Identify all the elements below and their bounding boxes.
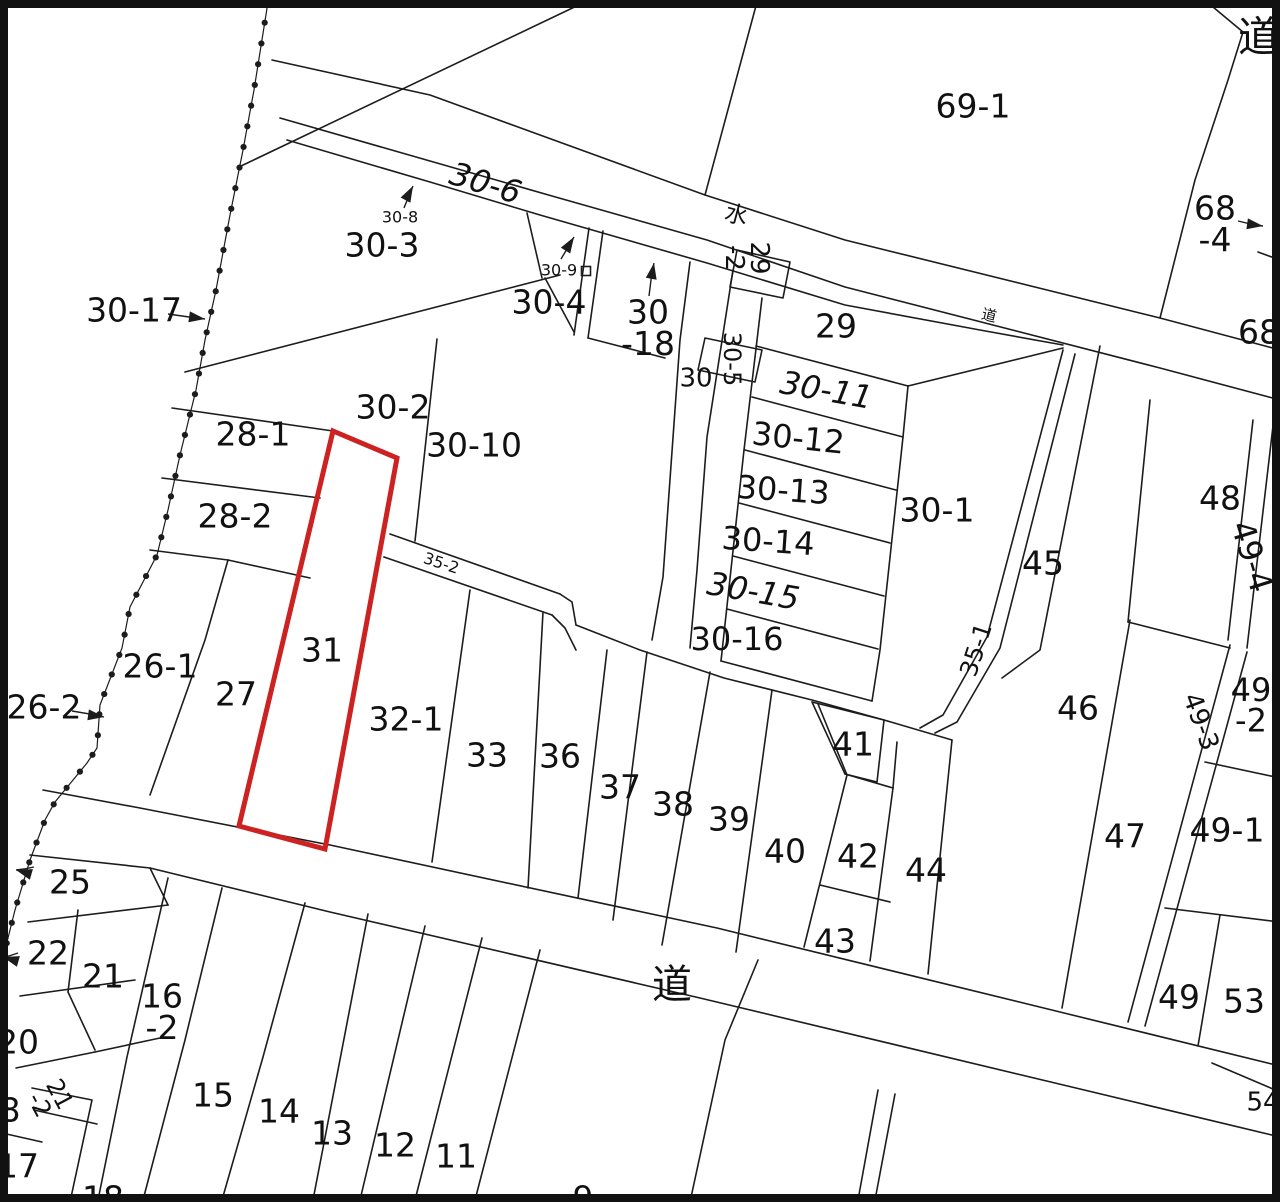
parcel-label-30-13: 30-13 [735,468,830,512]
parcel-label-47: 47 [1104,817,1146,856]
boundary-dot [196,370,202,376]
parcel-49-2: 49-2 [1231,671,1272,739]
boundary-dot [168,493,174,499]
boundary-dot [133,592,139,598]
parcel-label-44: 44 [905,851,947,890]
parcel-16-2: 16-2 [141,977,183,1047]
parcel-label-13: 13 [311,1114,353,1153]
boundary-dot [177,452,183,458]
boundary-dot [122,632,128,638]
parcel-label-30: 30 [679,364,712,394]
boundary-dot [41,820,47,826]
parcel-label-31: 31 [301,631,343,670]
parcel-label-32-1: 32-1 [369,700,444,739]
boundary-dot [252,82,258,88]
parcel-68-4: 68-4 [1194,189,1236,259]
boundary-dot [262,20,268,26]
boundary-dot [244,123,250,129]
boundary-dot [192,391,198,397]
parcel-label-11: 11 [435,1137,477,1176]
boundary-dot [20,879,26,885]
parcel-label-14: 14 [258,1092,300,1131]
parcel-30-18: 30-18 [621,293,675,363]
boundary-dot [224,226,230,232]
road-label-main: 道 [652,962,692,1008]
parcel-label-30-14: 30-14 [720,519,815,563]
parcel-label-22: 22 [27,934,69,973]
boundary-dot [217,268,223,274]
boundary-dot [89,752,95,758]
boundary-dot [240,144,246,150]
cadastral-map-svg: 道69-168-46830-6水30-830-330-930-430-1829-… [0,0,1280,1202]
cadastral-map-canvas[interactable]: 道69-168-46830-6水30-830-330-930-430-1829-… [0,0,1280,1202]
boundary-dot [33,839,39,845]
parcel-label-21: 21 [82,957,124,996]
boundary-dot [158,534,164,540]
boundary-dot [143,573,149,579]
parcel-label-30-9: 30-9 [541,261,577,280]
parcel-label-49-1: 49-1 [1190,811,1265,850]
parcel-label-53: 53 [1223,982,1265,1021]
parcel-label-28-2: 28-2 [198,497,273,536]
parcel-label-30-1: 30-1 [900,491,975,530]
parcel-label-29: 29 [815,307,857,346]
parcel-label-46: 46 [1057,689,1099,728]
boundary-dot [26,859,32,865]
boundary-dot [232,185,238,191]
parcel-label-30-17: 30-17 [86,291,182,330]
parcel-label-30-2: 30-2 [356,388,431,427]
boundary-dot [172,473,178,479]
parcel-label-43: 43 [814,922,856,961]
boundary-dot [255,61,261,67]
boundary-dot [258,40,264,46]
parcel-label-41: 41 [832,725,874,764]
boundary-dot [109,671,115,677]
parcel-label-28-1: 28-1 [216,415,291,454]
boundary-dot [220,247,226,253]
parcel-label-48: 48 [1199,479,1241,518]
boundary-dot [208,309,214,315]
boundary-dot [153,554,159,560]
boundary-dot [182,432,188,438]
boundary-dot [9,920,15,926]
boundary-dot [204,329,210,335]
parcel-label-27: 27 [215,675,257,714]
boundary-dot [163,514,169,520]
parcel-label-30-10: 30-10 [426,426,522,465]
parcel-label-30-4: 30-4 [512,283,587,322]
boundary-dot [228,206,234,212]
parcel-label-49: 49 [1158,978,1200,1017]
boundary-dot [77,769,83,775]
parcel-label-30-16: 30-16 [691,620,784,658]
parcel-label-15: 15 [192,1076,234,1115]
boundary-dot [14,899,20,905]
map-background [0,0,1280,1202]
boundary-dot [187,411,193,417]
parcel-label-42: 42 [837,837,879,876]
boundary-dot [126,611,132,617]
boundary-dot [64,785,70,791]
boundary-dot [236,164,242,170]
parcel-label-33: 33 [466,736,508,775]
parcel-label-36: 36 [539,737,581,776]
parcel-label-25: 25 [49,863,91,902]
parcel-label-40: 40 [764,832,806,871]
parcel-label-12: 12 [374,1126,416,1165]
boundary-dot [95,732,101,738]
boundary-dot [116,652,122,658]
boundary-dot [51,801,57,807]
boundary-dot [213,288,219,294]
parcel-29-2: 29-2 [719,241,774,274]
parcel-label-45: 45 [1022,544,1064,583]
parcel-label-39: 39 [708,800,750,839]
parcel-label-26-1: 26-1 [123,647,198,686]
parcel-label-30-5: 30-5 [718,332,746,386]
boundary-dot [248,103,254,109]
parcel-label-69-1: 69-1 [936,87,1011,126]
parcel-label-38: 38 [652,785,694,824]
parcel-label-30-3: 30-3 [345,226,420,265]
parcel-label-26-2: 26-2 [7,688,82,727]
parcel-label-30-8: 30-8 [382,208,418,227]
boundary-dot [200,350,206,356]
boundary-dot [101,691,107,697]
parcel-label-37: 37 [599,768,641,807]
